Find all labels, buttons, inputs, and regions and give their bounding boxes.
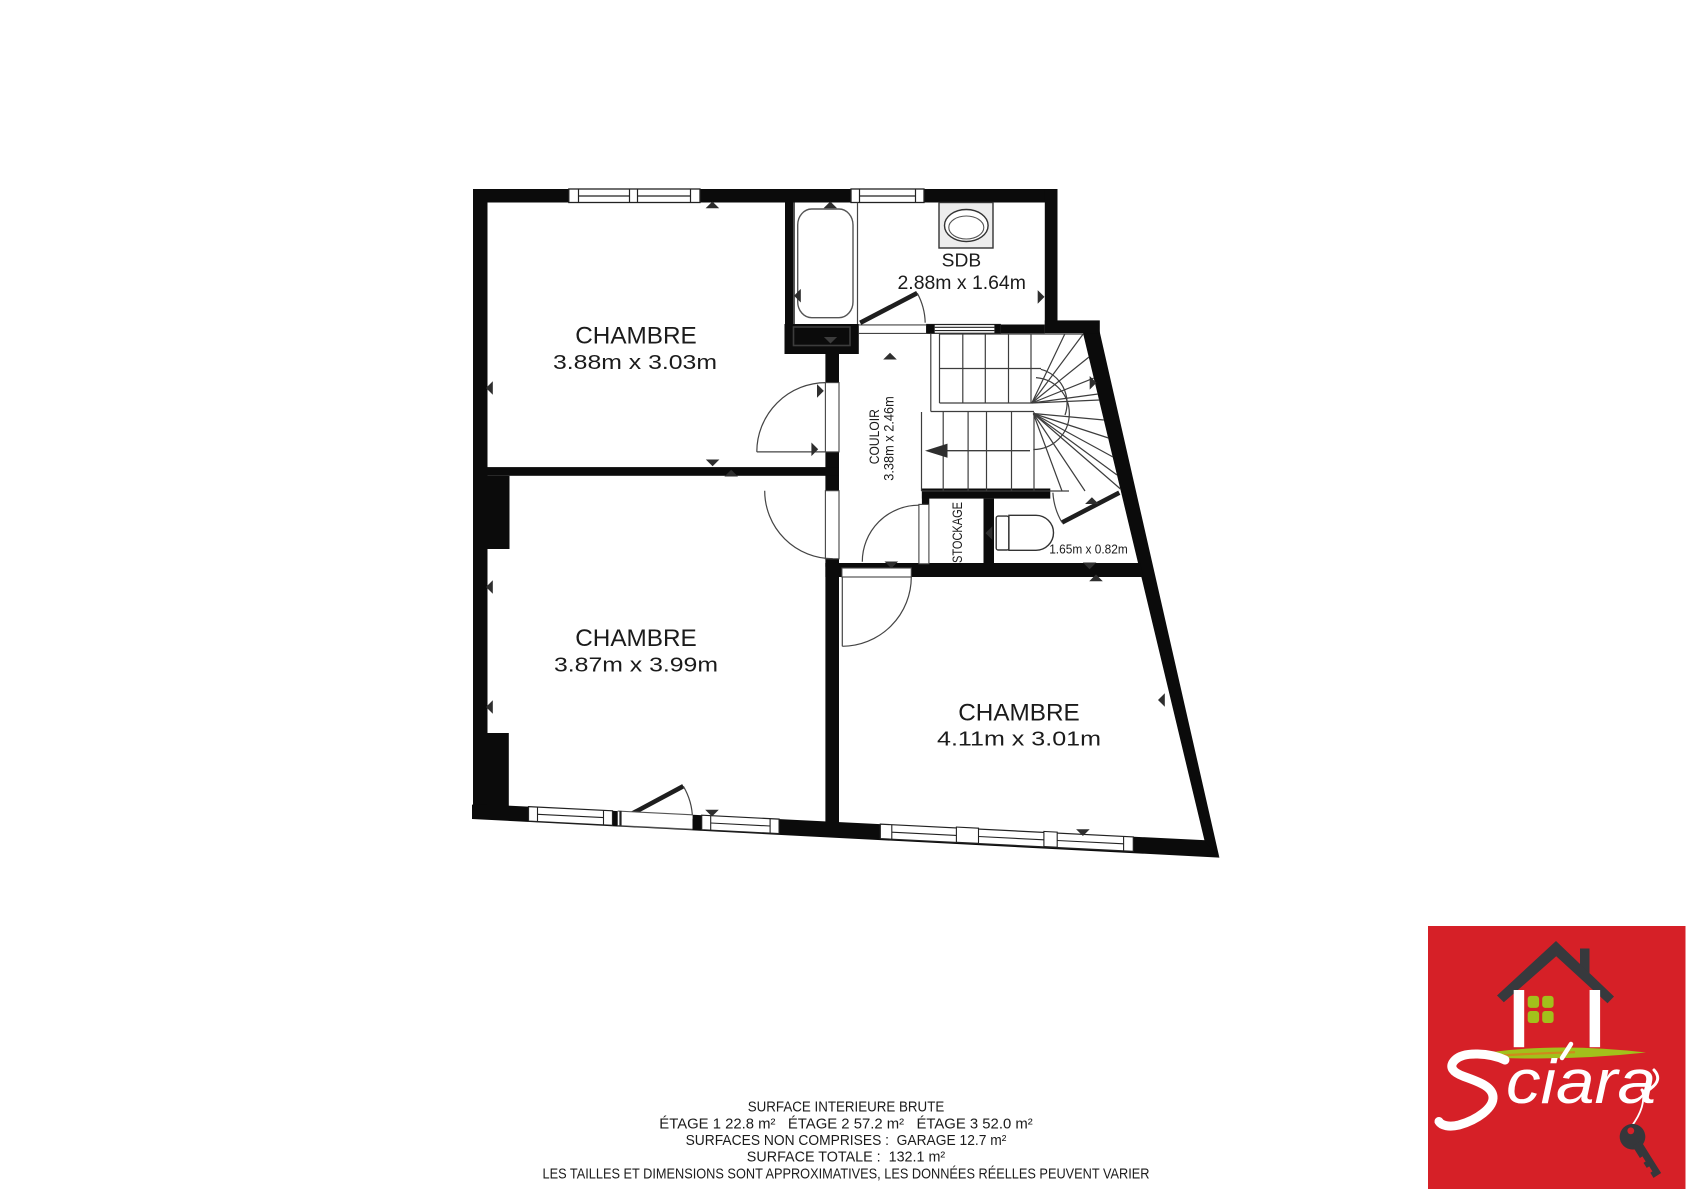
svg-text:CHAMBRE: CHAMBRE: [575, 625, 697, 652]
svg-text:SDB: SDB: [942, 251, 982, 271]
svg-text:STOCKAGE: STOCKAGE: [950, 502, 965, 563]
svg-text:ciara: ciara: [1506, 1048, 1656, 1117]
svg-text:3.38m x 2.46m: 3.38m x 2.46m: [881, 396, 896, 481]
svg-text:4.11m x 3.01m: 4.11m x 3.01m: [937, 728, 1101, 750]
svg-text:3.88m x 3.03m: 3.88m x 3.03m: [553, 352, 717, 374]
svg-text:SURFACE TOTALE : 132.1 m²: SURFACE TOTALE : 132.1 m²: [747, 1150, 946, 1166]
svg-text:SURFACES NON COMPRISES : GARA: SURFACES NON COMPRISES : GARAGE 12.7 m²: [686, 1133, 1007, 1149]
svg-text:2.88m x 1.64m: 2.88m x 1.64m: [898, 273, 1026, 294]
svg-text:CHAMBRE: CHAMBRE: [958, 699, 1080, 726]
svg-text:ÉTAGE 1 22.8 m² ÉTAGE 2 57.2: ÉTAGE 1 22.8 m² ÉTAGE 2 57.2 m² ÉTAGE 3 …: [659, 1116, 1033, 1133]
svg-text:1.65m x 0.82m: 1.65m x 0.82m: [1049, 542, 1128, 557]
svg-text:SURFACE INTERIEURE BRUTE: SURFACE INTERIEURE BRUTE: [748, 1100, 945, 1116]
svg-text:3.87m x 3.99m: 3.87m x 3.99m: [554, 654, 718, 676]
svg-text:COULOIR: COULOIR: [866, 409, 882, 464]
svg-text:CHAMBRE: CHAMBRE: [575, 322, 697, 349]
svg-text:LES TAILLES ET DIMENSIONS SONT: LES TAILLES ET DIMENSIONS SONT APPROXIMA…: [543, 1166, 1150, 1183]
